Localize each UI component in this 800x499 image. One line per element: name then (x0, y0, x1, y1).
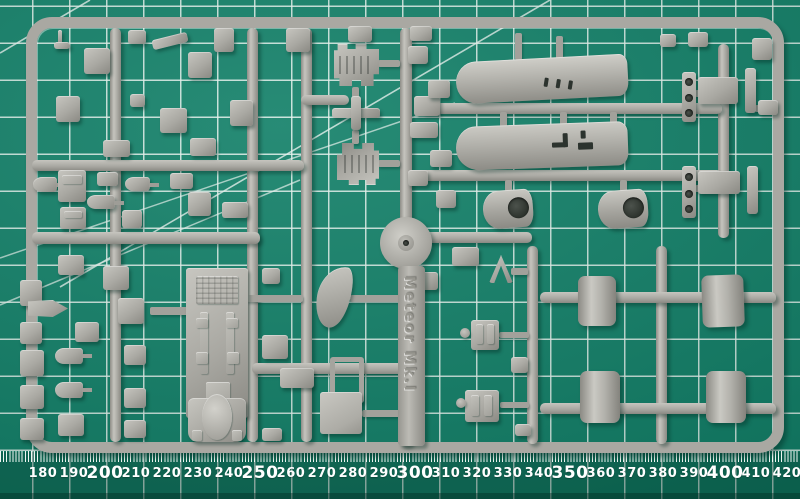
part-small (660, 34, 676, 47)
sprue-gate (499, 332, 529, 338)
ruler-scale: 1801902002102202302402502602702802903003… (0, 462, 800, 496)
ruler-number: 220 (153, 466, 182, 481)
part-small (222, 202, 248, 218)
part-small (752, 38, 772, 60)
part-small (20, 322, 42, 344)
part-small (124, 345, 146, 365)
part-small (408, 46, 428, 64)
sprue-runner-vertical (527, 246, 538, 444)
part-small (408, 170, 428, 186)
part-small (103, 140, 130, 157)
part-small (54, 42, 70, 49)
part-small (124, 420, 146, 438)
part-tank-half (55, 348, 83, 364)
sprue-gate (500, 402, 529, 408)
part-strut (747, 166, 758, 214)
part-seat (471, 320, 499, 350)
part-small (758, 100, 778, 115)
sprue-runner-horizontal (301, 95, 349, 105)
part-tank-half (55, 382, 83, 398)
ruler-number: 210 (122, 466, 151, 481)
ruler-number: 190 (60, 466, 89, 481)
part-nacelle-half-lower (455, 121, 628, 171)
ruler-number: 410 (742, 466, 771, 481)
sprue-embossed-label: Meteor Mk.I (401, 276, 417, 393)
part-cylinder-section (706, 371, 746, 423)
part-small (84, 48, 110, 74)
part-small (118, 298, 144, 324)
part-small (428, 80, 450, 98)
ruler-number: 380 (649, 466, 678, 481)
photo-model-kit-sprue-on-cutting-mat: 1801902002102202302402502602702802903003… (0, 0, 800, 499)
sprue-runner-vertical (656, 246, 667, 444)
part-small (97, 172, 118, 186)
part-strut-plate (682, 72, 696, 122)
ruler-number: 230 (184, 466, 213, 481)
part-small (436, 190, 456, 208)
ruler-number: 250 (242, 463, 279, 483)
part-box (60, 207, 86, 229)
part-small (688, 32, 708, 47)
ruler-number: 270 (308, 466, 337, 481)
part-small (160, 108, 187, 133)
part-nacelle-half-upper (455, 54, 629, 105)
sprue-gate (511, 268, 528, 275)
part-small (58, 414, 84, 436)
sprue-runner-horizontal (420, 103, 722, 114)
sprue-runner-horizontal (252, 363, 406, 374)
part-small (188, 52, 212, 78)
part-small (190, 138, 216, 156)
part-small (20, 418, 44, 440)
part-small (170, 173, 193, 189)
part-knob (460, 328, 470, 338)
part-small (262, 335, 288, 359)
part-small (286, 28, 310, 52)
ruler-number: 390 (680, 466, 709, 481)
ruler-number: 280 (339, 466, 368, 481)
part-small (410, 26, 432, 41)
ruler-number: 420 (773, 466, 800, 481)
part-small (698, 171, 740, 194)
part-wheel-well (188, 398, 246, 442)
ruler-number: 400 (707, 463, 744, 483)
part-small (124, 388, 146, 408)
part-box (58, 170, 86, 202)
part-strut-plate (682, 166, 696, 218)
ruler-number: 340 (525, 466, 554, 481)
part-hatch-panel (320, 392, 362, 434)
part-small (262, 428, 282, 441)
ruler-number: 320 (463, 466, 492, 481)
sprue-gate (378, 60, 400, 67)
ruler-number: 360 (587, 466, 616, 481)
part-small (75, 322, 99, 342)
sprue-runner-horizontal (32, 232, 260, 244)
part-engine-intake (597, 188, 650, 229)
ruler-number: 180 (29, 466, 58, 481)
part-cylinder-section (701, 274, 745, 327)
part-seat (465, 390, 499, 422)
part-strut (745, 68, 756, 113)
part-cylinder-section (580, 371, 620, 423)
part-knob (456, 398, 466, 408)
ruler-number: 350 (552, 463, 589, 483)
sprue-gate (350, 295, 402, 302)
part-small (214, 28, 234, 52)
sprue-label-plate: Meteor Mk.I (398, 266, 425, 446)
sprue-runner-vertical (718, 44, 729, 238)
part-main-wheel (380, 217, 432, 269)
sprue-gate (150, 307, 188, 315)
part-small (56, 96, 80, 122)
part-instrument-panel (337, 143, 379, 185)
part-small (515, 424, 531, 436)
part-small (262, 268, 280, 284)
sprue-gate (352, 130, 359, 144)
part-tank-half (33, 177, 57, 192)
part-small (410, 122, 438, 138)
part-small (511, 357, 528, 373)
sprue-gate (247, 295, 303, 302)
sprue-runner-horizontal (420, 170, 722, 181)
part-small (188, 192, 211, 216)
part-small (348, 26, 372, 42)
part-small (452, 247, 479, 266)
part-small (430, 150, 452, 167)
ruler-number: 370 (618, 466, 647, 481)
ruler-number: 240 (215, 466, 244, 481)
part-small (103, 266, 129, 290)
part-small (122, 210, 142, 228)
part-small (414, 96, 440, 116)
part-instrument-panel (334, 44, 379, 86)
part-small (20, 350, 44, 376)
part-tank-half (125, 177, 150, 191)
ruler-number: 200 (87, 463, 124, 483)
part-small (130, 94, 145, 107)
part-small (20, 385, 44, 409)
ruler-number: 330 (494, 466, 523, 481)
part-small (230, 100, 253, 126)
sprue-gate (362, 410, 402, 417)
part-engine-intake (482, 188, 535, 229)
ruler-number: 310 (432, 466, 461, 481)
ruler-number: 260 (277, 466, 306, 481)
sprue-gate (515, 33, 522, 60)
part-step (280, 368, 314, 388)
part-small (58, 255, 84, 275)
sprue-gate (378, 160, 400, 167)
part-cylinder-section (578, 276, 616, 326)
ruler-number: 290 (370, 466, 399, 481)
ruler-number: 300 (397, 463, 434, 483)
part-small (128, 30, 146, 44)
part-tank-half (87, 195, 115, 209)
part-small (698, 77, 738, 104)
part-cross-brace (351, 96, 361, 130)
